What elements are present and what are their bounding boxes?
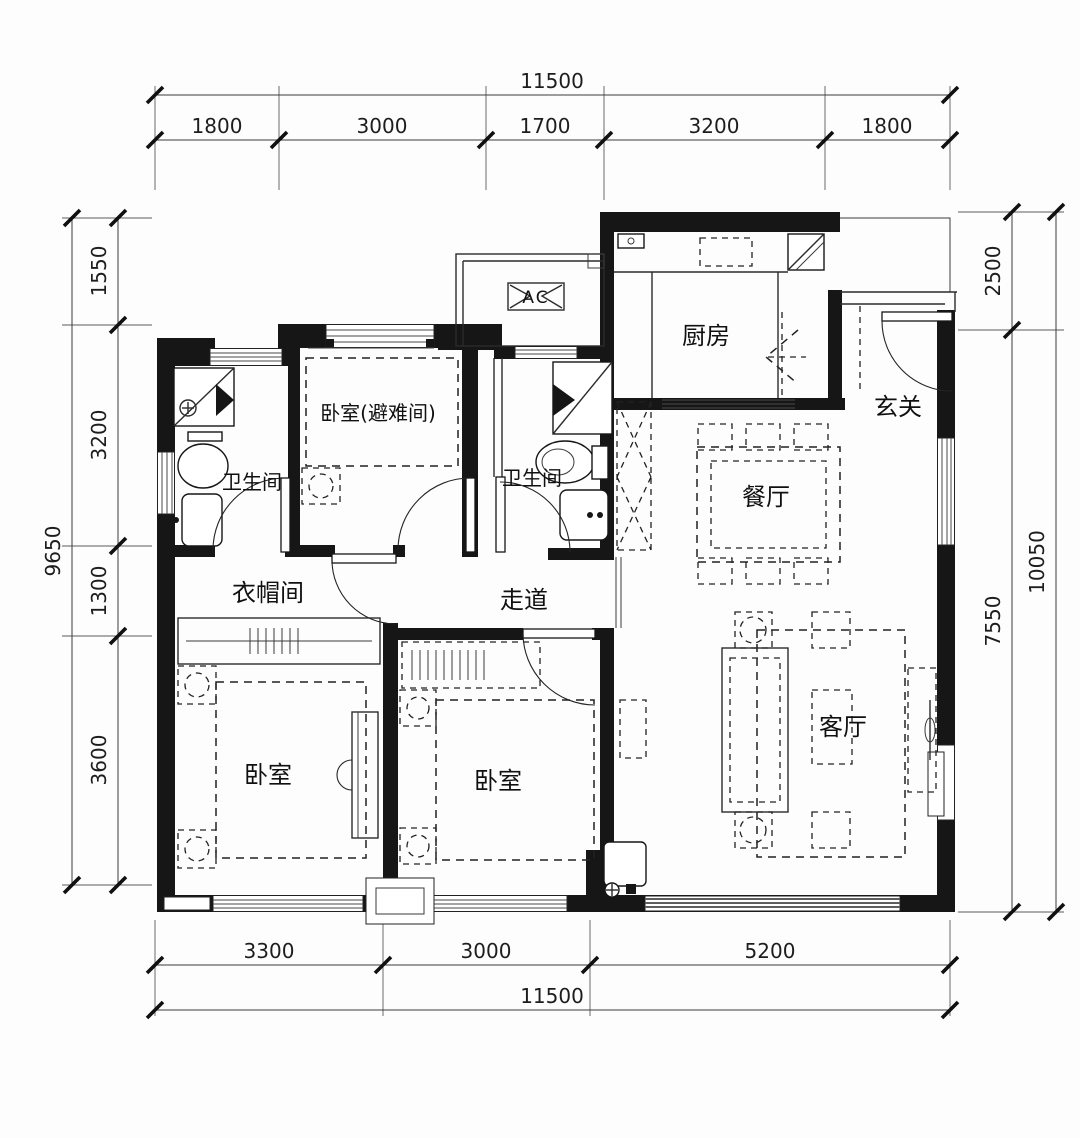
walls bbox=[157, 212, 955, 912]
label-living: 客厅 bbox=[819, 713, 867, 741]
duct-shaft bbox=[617, 402, 651, 550]
label-foyer: 玄关 bbox=[874, 393, 922, 421]
label-ac: AC bbox=[522, 288, 549, 308]
dim-top-seg-1: 3000 bbox=[357, 114, 408, 138]
bay-window bbox=[366, 878, 434, 924]
sink-left bbox=[182, 494, 222, 546]
label-kitchen: 厨房 bbox=[682, 322, 730, 350]
refuge-bedroom-furniture bbox=[302, 358, 458, 504]
console bbox=[620, 700, 646, 758]
label-cloakroom: 衣帽间 bbox=[232, 579, 304, 607]
toilet-left bbox=[178, 444, 228, 488]
dim-top-seg-3: 3200 bbox=[689, 114, 740, 138]
label-bath-left: 卫生间 bbox=[222, 470, 282, 494]
floor-plan-canvas: 11500 1800 3000 1700 3200 1800 3300 3000… bbox=[0, 0, 1080, 1138]
nightstand bbox=[178, 666, 216, 704]
rug bbox=[757, 630, 905, 857]
dim-bottom-seg-1: 3000 bbox=[461, 939, 512, 963]
dim-top-seg-0: 1800 bbox=[192, 114, 243, 138]
dim-bottom-seg-2: 5200 bbox=[745, 939, 796, 963]
wardrobe bbox=[402, 642, 540, 688]
label-bedroom-left: 卧室 bbox=[244, 761, 292, 789]
dim-left-seg-2: 1300 bbox=[87, 566, 111, 617]
label-bath-center: 卫生间 bbox=[502, 466, 562, 490]
window-bedroom-center bbox=[432, 896, 567, 912]
dim-top-total: 11500 bbox=[520, 69, 584, 93]
dim-bottom-seg-0: 3300 bbox=[244, 939, 295, 963]
bath-left-fixtures bbox=[173, 368, 234, 546]
nightstand bbox=[400, 828, 436, 864]
toilet-center-tank bbox=[592, 446, 608, 479]
dim-left-total: 9650 bbox=[41, 526, 65, 577]
label-corridor: 走道 bbox=[500, 586, 548, 614]
dim-right-seg-0: 2500 bbox=[981, 246, 1005, 297]
stool bbox=[812, 812, 850, 848]
dim-left-seg-1: 3200 bbox=[87, 410, 111, 461]
floor-plan: 11500 1800 3000 1700 3200 1800 3300 3000… bbox=[0, 0, 1080, 1138]
window-left-wall bbox=[158, 452, 175, 514]
dim-bottom-total: 11500 bbox=[520, 984, 584, 1008]
label-bedroom-center: 卧室 bbox=[474, 767, 522, 795]
cloakroom-door bbox=[332, 554, 396, 624]
dim-right-seg-1: 7550 bbox=[981, 596, 1005, 647]
dim-top-seg-4: 1800 bbox=[862, 114, 913, 138]
desk bbox=[352, 712, 378, 838]
label-refuge-bedroom: 卧室(避难间) bbox=[320, 401, 436, 425]
dim-top-seg-2: 1700 bbox=[520, 114, 571, 138]
window-right-balcony-door bbox=[928, 745, 955, 820]
stove bbox=[700, 238, 752, 266]
dim-left-seg-3: 3600 bbox=[87, 735, 111, 786]
bath-center-fixtures bbox=[494, 358, 612, 540]
dim-left-seg-0: 1550 bbox=[87, 246, 111, 297]
chair bbox=[337, 760, 352, 790]
nightstand bbox=[178, 830, 216, 868]
toilet-left-tank bbox=[188, 432, 222, 441]
living-furniture bbox=[604, 612, 936, 897]
label-dining: 餐厅 bbox=[742, 483, 790, 511]
bedroom-center-door bbox=[523, 629, 595, 705]
window-refuge-bedroom bbox=[326, 325, 434, 348]
window-top-left bbox=[210, 349, 282, 366]
kitchen-counter bbox=[614, 234, 824, 408]
window-bath-center bbox=[515, 347, 577, 359]
bedroom-center-furniture bbox=[400, 642, 594, 864]
window-right-upper bbox=[938, 438, 955, 545]
kitchen-sink bbox=[618, 234, 644, 248]
nightstand bbox=[400, 690, 436, 726]
dim-right-total: 10050 bbox=[1025, 530, 1049, 594]
cloakroom-closet bbox=[178, 618, 380, 664]
window-bottom-left-corner bbox=[164, 897, 210, 910]
window-living bbox=[645, 896, 900, 911]
sofa bbox=[722, 648, 788, 812]
window-bedroom-left bbox=[213, 896, 363, 912]
cabinet bbox=[604, 842, 646, 886]
